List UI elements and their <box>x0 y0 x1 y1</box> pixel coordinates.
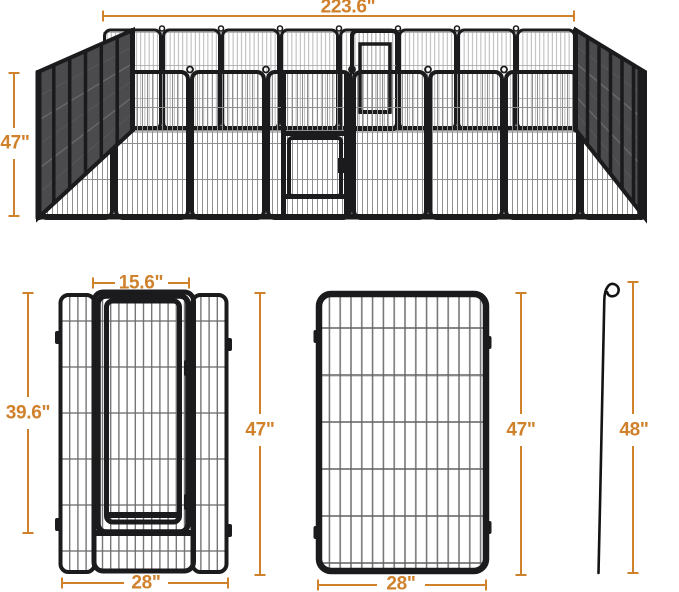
dim-label-panel-width: 28" <box>386 575 415 592</box>
dim-label-door-panel-height: 47" <box>245 421 274 440</box>
door-panel-front-view <box>55 292 232 572</box>
playpen-isometric-view <box>36 26 646 220</box>
dim-label-stake-height: 48" <box>619 421 648 440</box>
dim-label-pen-top-width: 223.6" <box>321 0 376 17</box>
gate-hinge <box>184 360 192 376</box>
ground-stake-view <box>599 284 619 573</box>
panel-front-view <box>314 294 492 571</box>
dim-label-gate-width: 15.6" <box>119 274 164 293</box>
dim-label-panel-height: 47" <box>506 421 535 440</box>
diagram-artwork <box>0 0 679 592</box>
dim-label-pen-side-height: 47" <box>0 134 29 153</box>
product-dimension-diagram: 223.6" 47" 15.6" 39.6" 47" 28" 47" 28" 4… <box>0 0 679 592</box>
gate-hinge <box>184 494 192 510</box>
dim-label-door-panel-width: 28" <box>131 574 160 592</box>
dim-label-gate-height: 39.6" <box>6 404 51 423</box>
